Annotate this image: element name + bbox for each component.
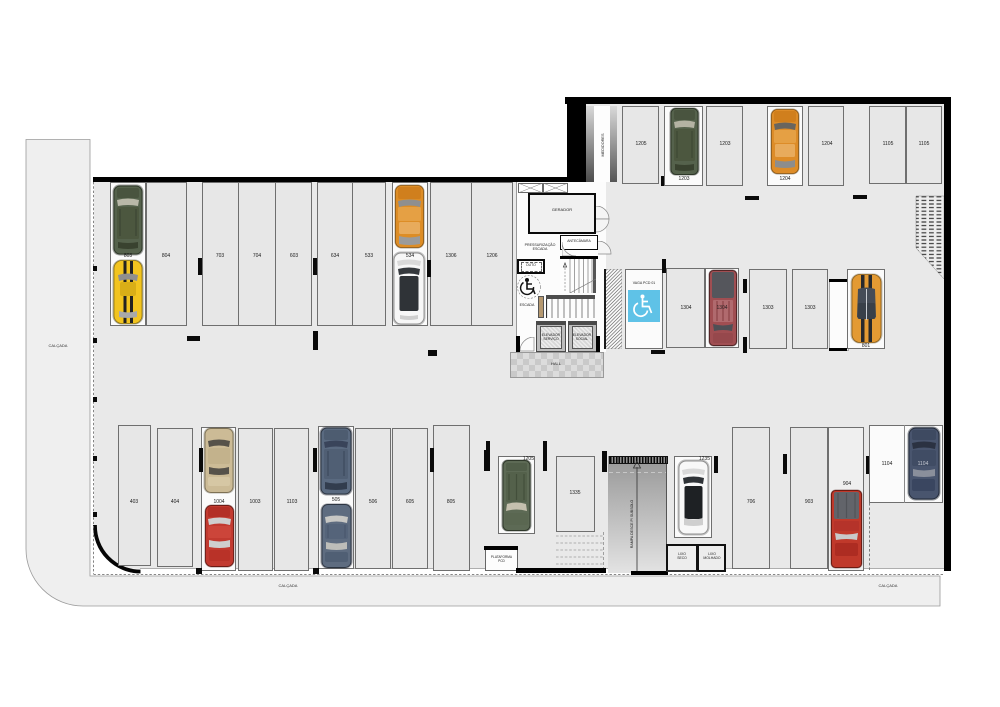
svg-text:MEDIDORES: MEDIDORES (601, 133, 605, 156)
svg-text:RAMPA DESCE P/ SUBSOLO: RAMPA DESCE P/ SUBSOLO (630, 500, 634, 549)
